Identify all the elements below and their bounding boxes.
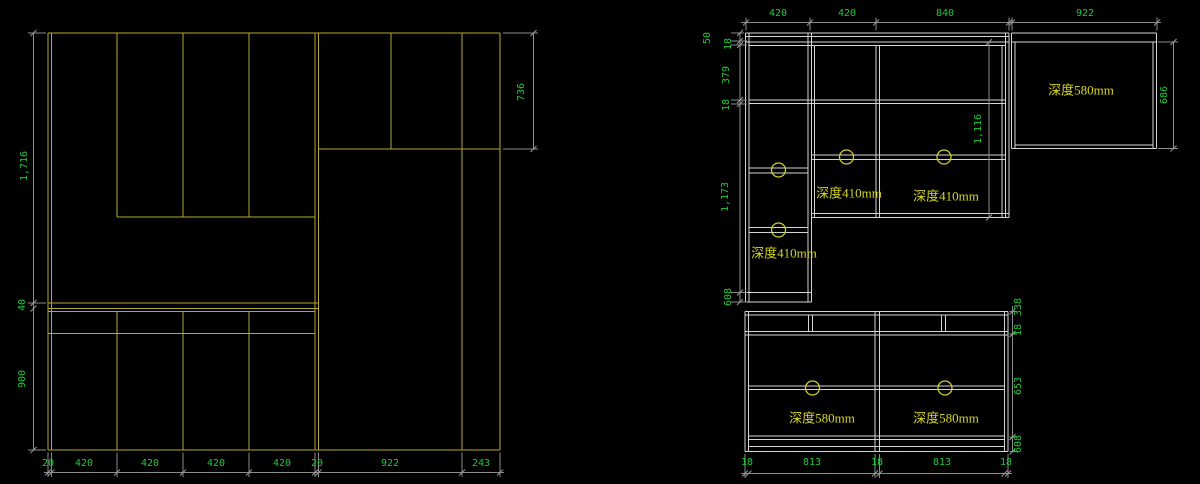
dim-label-bottom: 420 xyxy=(141,459,159,469)
dim-label-left-chain: 1,173 xyxy=(721,182,731,212)
depth-label: 深度580mm xyxy=(913,412,979,425)
dim-label-base-height: 900 xyxy=(18,370,28,388)
knob-circle xyxy=(772,163,786,177)
dim-label-left-chain: 18 xyxy=(724,38,734,50)
depth-label: 深度580mm xyxy=(789,412,855,425)
dim-label-top: 840 xyxy=(936,9,954,19)
dim-label-inner-height: 1,116 xyxy=(974,114,984,144)
dim-label-top: 420 xyxy=(769,9,787,19)
dim-label-right-chain: 653 xyxy=(1014,377,1024,395)
knob-circle xyxy=(772,223,786,237)
dim-label-bottom: 420 xyxy=(273,459,291,469)
depth-label: 深度580mm xyxy=(1048,84,1114,97)
dim-label-bottom: 20 xyxy=(42,459,54,469)
depth-label: 深度410mm xyxy=(816,187,882,200)
dim-label-right-chain: 18 xyxy=(1014,324,1024,336)
cad-linework xyxy=(0,0,1200,484)
dim-label-left-chain: 608 xyxy=(724,288,734,306)
dim-label-bottom: 420 xyxy=(75,459,93,469)
dim-label-right-chain: 338 xyxy=(1014,298,1024,316)
dim-label-right-chain: 608 xyxy=(1014,435,1024,453)
dim-label-bottom: 922 xyxy=(381,459,399,469)
dim-label-top: 922 xyxy=(1076,9,1094,19)
dim-label-bottom: 813 xyxy=(933,458,951,468)
dim-label-top: 420 xyxy=(838,9,856,19)
dim-label-bottom: 20 xyxy=(311,459,323,469)
knob-circle xyxy=(840,150,854,164)
dim-label-wall-height: 686 xyxy=(1160,86,1170,104)
dim-label-upper-right: 736 xyxy=(517,83,527,101)
knob-circle xyxy=(937,150,951,164)
dim-label-bottom: 420 xyxy=(207,459,225,469)
cad-canvas: 1,716 40 900 736 20 420 420 420 420 20 9… xyxy=(0,0,1200,484)
left-elevation-linework xyxy=(48,33,500,450)
dim-label-left-chain: 50 xyxy=(703,32,713,44)
knob-circle xyxy=(806,381,820,395)
dim-label-bottom: 18 xyxy=(1000,458,1012,468)
knob-circle xyxy=(938,381,952,395)
dim-label-left-chain: 379 xyxy=(722,66,732,84)
dim-label-bottom: 18 xyxy=(871,458,883,468)
base-cabinet-linework xyxy=(745,312,1008,452)
depth-label: 深度410mm xyxy=(913,190,979,203)
dim-label-left-height: 1,716 xyxy=(20,151,30,181)
dim-label-bottom: 18 xyxy=(741,458,753,468)
dim-label-left-chain: 18 xyxy=(722,99,732,111)
dim-label-bottom: 243 xyxy=(472,459,490,469)
dim-label-bottom: 813 xyxy=(803,458,821,468)
dim-label-counter: 40 xyxy=(18,299,28,311)
depth-label: 深度410mm xyxy=(751,247,817,260)
